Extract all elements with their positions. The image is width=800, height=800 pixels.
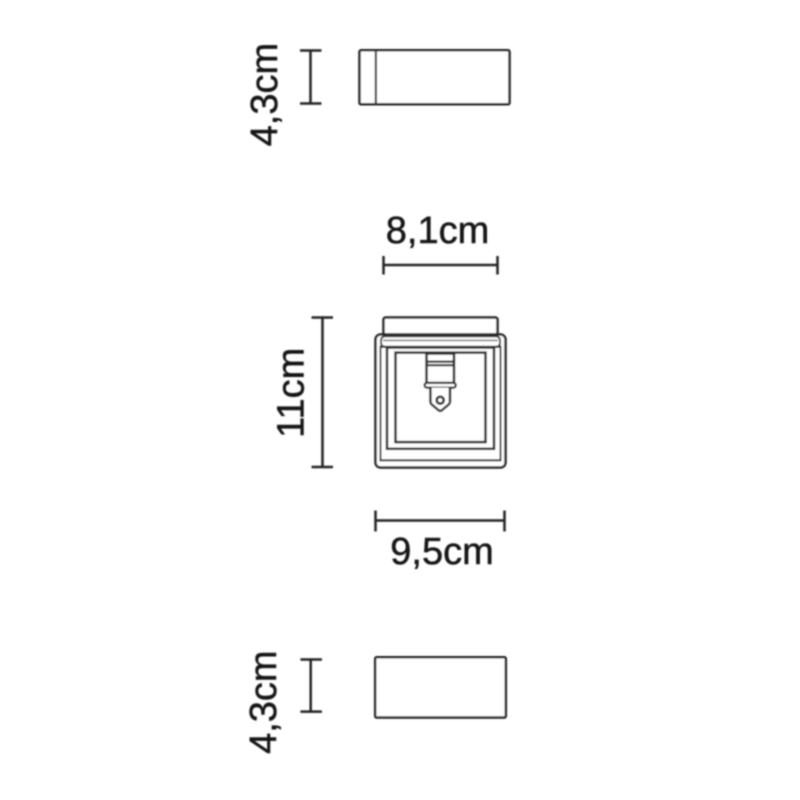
svg-text:4,3cm: 4,3cm [244, 43, 286, 146]
svg-text:11cm: 11cm [271, 348, 313, 438]
svg-text:9,5cm: 9,5cm [390, 531, 493, 573]
svg-text:8,1cm: 8,1cm [386, 210, 489, 252]
svg-text:4,3cm: 4,3cm [243, 650, 285, 753]
